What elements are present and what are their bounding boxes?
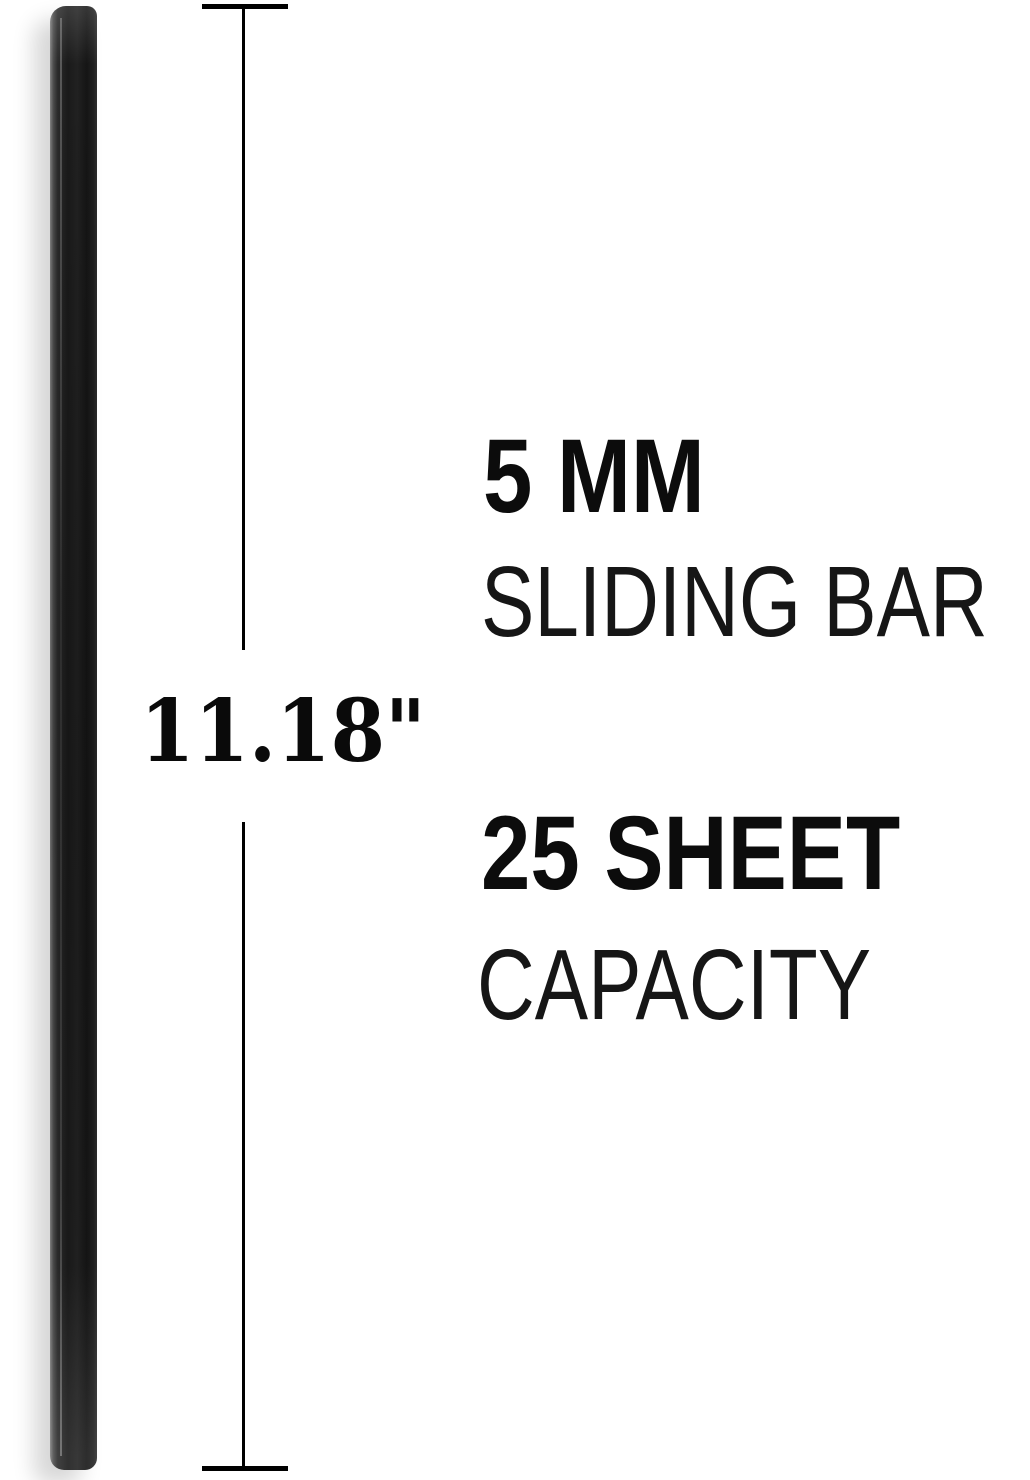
- spec-capacity-value: 25 SHEET: [481, 801, 900, 906]
- product-image-canvas: 11.18" 5 MM SLIDING BAR 25 SHEET CAPACIT…: [0, 0, 1030, 1480]
- dimension-line-upper: [242, 8, 245, 650]
- spec-thickness-label: SLIDING BAR: [481, 552, 988, 652]
- dimension-length-label: 11.18": [140, 689, 426, 775]
- sliding-bar-photo: [50, 6, 97, 1470]
- dimension-tick-bottom: [202, 1466, 288, 1471]
- spec-thickness-value: 5 MM: [483, 424, 705, 529]
- spec-capacity-label: CAPACITY: [477, 935, 871, 1035]
- dimension-tick-top: [202, 4, 288, 9]
- dimension-line-lower: [242, 822, 245, 1468]
